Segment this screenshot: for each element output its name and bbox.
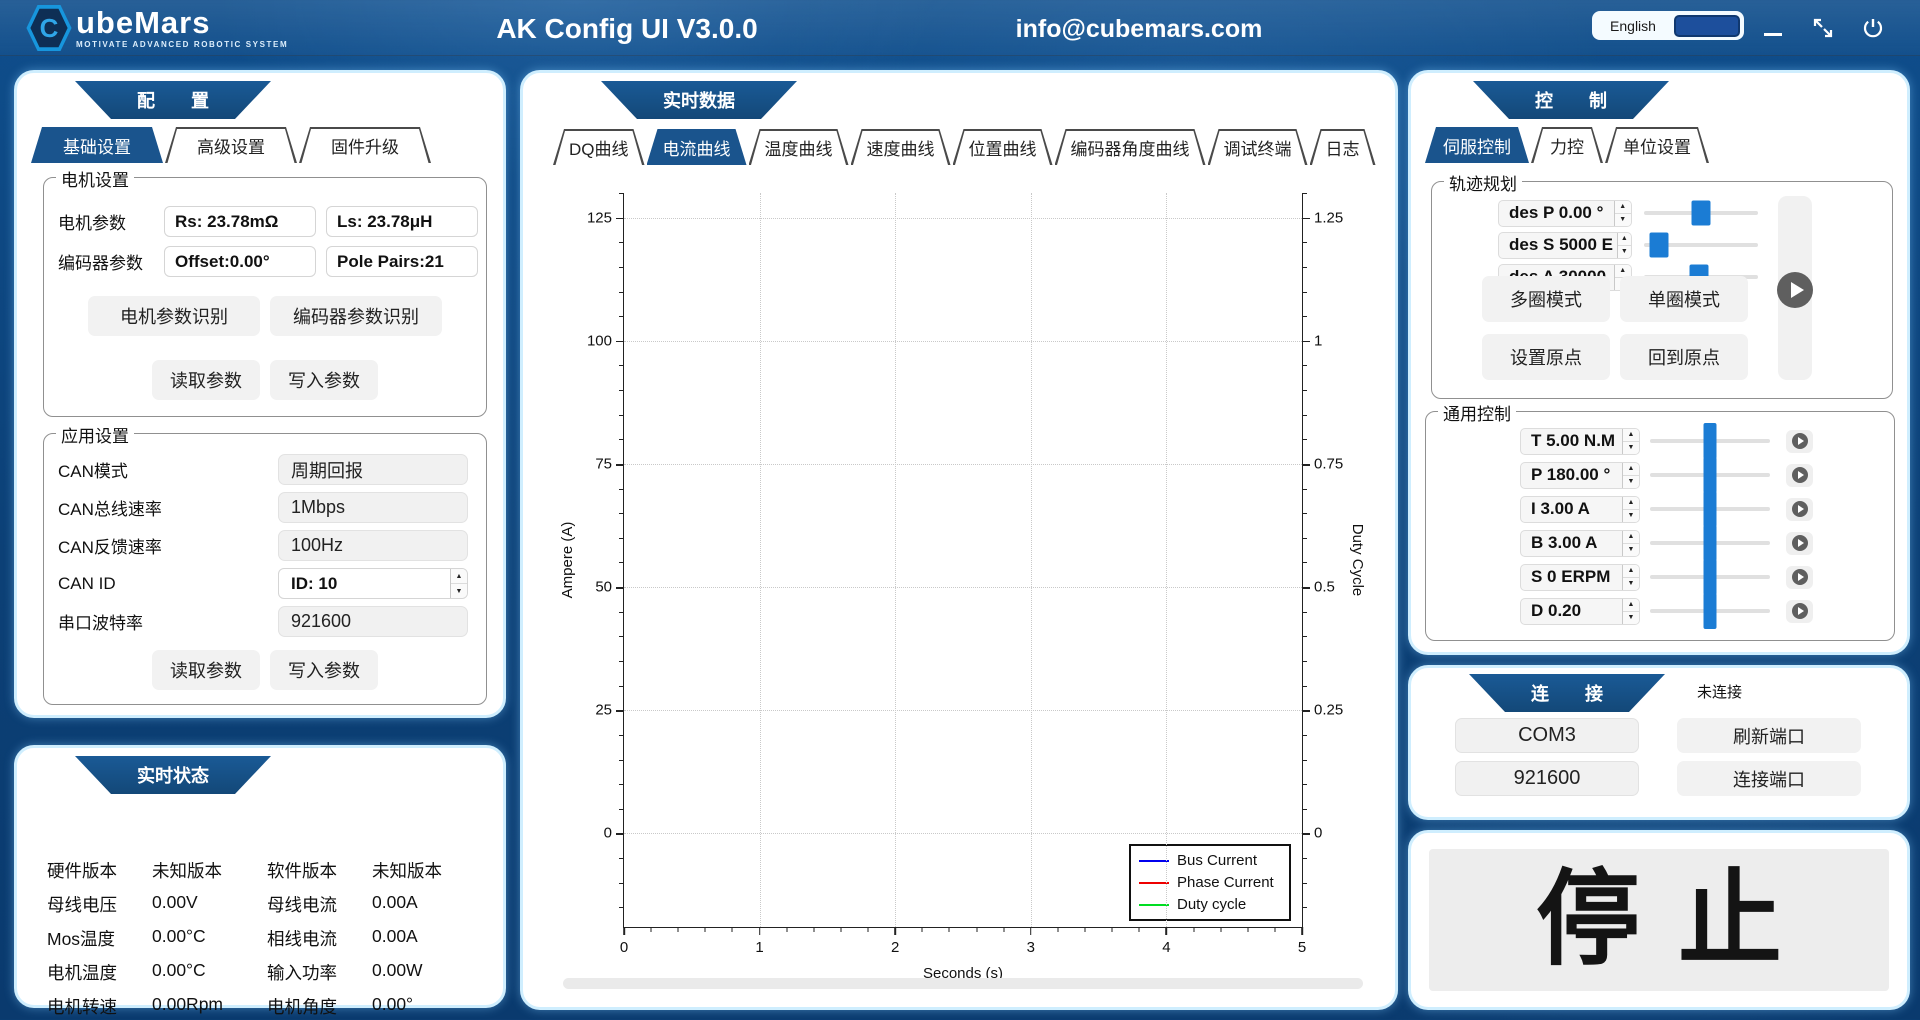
y-axis-tick-label: 0.25 xyxy=(1314,702,1343,719)
tab-label: DQ曲线 xyxy=(569,135,629,160)
tab-encoder-angle-curve[interactable]: 编码器角度曲线 xyxy=(1055,129,1206,165)
control-tabs: 伺服控制 力控 单位设置 xyxy=(1425,127,1711,163)
current-spinbox[interactable]: I 3.00 A▲▼ xyxy=(1520,496,1640,523)
status-label: 母线电流 xyxy=(267,892,364,917)
torque-run-button[interactable] xyxy=(1786,430,1813,453)
legend-label: Bus Current xyxy=(1177,852,1257,869)
can-id-label: CAN ID xyxy=(58,574,278,594)
realtime-data-panel: 实时数据 DQ曲线 电流曲线 温度曲线 速度曲线 位置曲线 编码器角度曲线 调试… xyxy=(520,70,1398,1010)
spin-down-icon[interactable]: ▼ xyxy=(1623,578,1639,590)
brake-row: B 3.00 A▲▼ xyxy=(1520,528,1870,558)
slider-thumb[interactable] xyxy=(1704,457,1717,493)
motor-identify-button[interactable]: 电机参数识别 xyxy=(88,296,260,336)
gridline-horizontal xyxy=(624,464,1302,465)
torque-row: T 5.00 N.M▲▼ xyxy=(1520,426,1870,456)
spin-up-icon[interactable]: ▲ xyxy=(1623,599,1639,612)
tab-label: 基础设置 xyxy=(63,133,131,158)
brake-value: B 3.00 A xyxy=(1521,531,1622,556)
duty-run-button[interactable] xyxy=(1786,600,1813,623)
y-axis-minor-tick xyxy=(1302,809,1307,810)
y-axis-minor-tick xyxy=(1302,316,1307,317)
spin-down-icon[interactable]: ▼ xyxy=(1623,612,1639,624)
tab-unit-settings[interactable]: 单位设置 xyxy=(1605,127,1709,163)
ls-field[interactable]: Ls: 23.78μH xyxy=(326,206,478,237)
current-slider[interactable] xyxy=(1650,494,1770,524)
baud-rate-select[interactable]: 921600 xyxy=(1455,761,1639,796)
stop-button[interactable]: 停止 xyxy=(1429,849,1889,991)
slider-thumb[interactable] xyxy=(1704,423,1717,459)
brake-spinbox[interactable]: B 3.00 A▲▼ xyxy=(1520,530,1640,557)
spin-down-icon[interactable]: ▼ xyxy=(1615,214,1631,226)
can-bus-rate-label: CAN总线速率 xyxy=(58,495,278,520)
slider-thumb[interactable] xyxy=(1691,201,1710,226)
y-axis-minor-tick xyxy=(1302,784,1307,785)
brand-name: ubeMars xyxy=(76,8,288,38)
tab-label: 电流曲线 xyxy=(663,135,731,160)
y-axis-minor-tick xyxy=(1302,365,1307,366)
language-toggle[interactable]: English xyxy=(1592,11,1744,40)
motor-settings-group: 电机设置 电机参数 Rs: 23.78mΩ Ls: 23.78μH 编码器参数 … xyxy=(43,177,487,417)
tab-label: 速度曲线 xyxy=(867,135,935,160)
play-icon xyxy=(1798,607,1804,615)
tab-label: 温度曲线 xyxy=(765,135,833,160)
single-turn-mode-button[interactable]: 单圈模式 xyxy=(1620,276,1748,322)
duty-value: D 0.20 xyxy=(1521,599,1622,624)
status-value: 0.00Rpm xyxy=(152,994,223,1019)
config-tabs: 基础设置 高级设置 固件升级 xyxy=(31,127,433,163)
status-row: 输入功率0.00W xyxy=(267,960,487,985)
y-axis-minor-tick xyxy=(1302,858,1307,859)
logo-hexagon-icon: C xyxy=(26,4,72,52)
slider-thumb[interactable] xyxy=(1704,525,1717,561)
tab-label: 单位设置 xyxy=(1623,133,1691,158)
status-grid: 硬件版本未知版本 软件版本未知版本 母线电压0.00V 母线电流0.00A Mo… xyxy=(47,858,487,1020)
y-axis-minor-tick xyxy=(1302,292,1307,293)
tab-log[interactable]: 日志 xyxy=(1310,129,1376,165)
status-label: 母线电压 xyxy=(47,892,144,917)
y-axis-minor-tick xyxy=(619,809,624,810)
des-speed-slider[interactable] xyxy=(1644,230,1758,260)
torque-spinbox[interactable]: T 5.00 N.M▲▼ xyxy=(1520,428,1640,455)
y-axis-tick-label: 0 xyxy=(1314,825,1322,842)
status-label: 输入功率 xyxy=(267,960,364,985)
des-position-value: des P 0.00 ° xyxy=(1499,201,1614,226)
x-axis-tick-label: 2 xyxy=(891,939,899,956)
torque-slider[interactable] xyxy=(1650,426,1770,456)
y-axis-minor-tick xyxy=(619,907,624,908)
x-axis-minor-tick xyxy=(1193,927,1194,932)
status-row: 母线电压0.00V xyxy=(47,892,267,917)
y-axis-tick xyxy=(616,833,624,835)
duty-slider[interactable] xyxy=(1650,596,1770,626)
spin-arrows[interactable]: ▲▼ xyxy=(1614,201,1631,226)
spin-arrows[interactable]: ▲▼ xyxy=(1617,233,1631,258)
tab-force-control[interactable]: 力控 xyxy=(1531,127,1603,163)
y-axis-tick-label: 1 xyxy=(1314,332,1322,349)
y-axis-tick-label: 0.75 xyxy=(1314,455,1343,472)
connect-port-button[interactable]: 连接端口 xyxy=(1677,761,1861,796)
write-params-button[interactable]: 写入参数 xyxy=(270,360,378,400)
spin-arrows[interactable]: ▲▼ xyxy=(1622,599,1639,624)
y-axis-tick xyxy=(616,464,624,466)
y-axis-minor-tick xyxy=(619,562,624,563)
duty-row: D 0.20▲▼ xyxy=(1520,596,1870,626)
read-params-button[interactable]: 读取参数 xyxy=(152,360,260,400)
slider-thumb[interactable] xyxy=(1704,491,1717,527)
spin-arrows[interactable]: ▲▼ xyxy=(1622,429,1639,454)
y-axis-minor-tick xyxy=(619,267,624,268)
y-axis-tick xyxy=(616,710,624,712)
spin-down-icon[interactable]: ▼ xyxy=(1623,442,1639,454)
trajectory-group: 轨迹规划 des P 0.00 ° ▲▼ des S 5000 E ▲▼ xyxy=(1431,181,1893,399)
x-axis-minor-tick xyxy=(1085,927,1086,932)
status-row: 电机温度0.00°C xyxy=(47,960,267,985)
tab-position-curve[interactable]: 位置曲线 xyxy=(953,129,1053,165)
trajectory-play-button[interactable] xyxy=(1777,272,1813,308)
legend-entry: Duty cycle xyxy=(1139,896,1281,913)
x-axis-minor-tick xyxy=(705,927,706,932)
y-axis-minor-tick xyxy=(1302,513,1307,514)
motor-settings-title: 电机设置 xyxy=(56,166,134,191)
y-axis-minor-tick xyxy=(1302,907,1307,908)
y-axis-minor-tick xyxy=(619,760,624,761)
y-axis-minor-tick xyxy=(619,661,624,662)
y-axis-minor-tick xyxy=(1302,883,1307,884)
config-banner: 配 置 xyxy=(75,81,271,119)
y-axis-tick-label: 100 xyxy=(562,332,612,349)
multi-turn-mode-button[interactable]: 多圈模式 xyxy=(1482,276,1610,322)
tab-advanced-settings[interactable]: 高级设置 xyxy=(165,127,297,163)
y-axis-tick-label: 75 xyxy=(562,455,612,472)
connection-panel: 连 接 未连接 COM3 921600 刷新端口 连接端口 xyxy=(1408,665,1910,820)
position-row: P 180.00 °▲▼ xyxy=(1520,460,1870,490)
brake-slider[interactable] xyxy=(1650,528,1770,558)
spin-arrows[interactable]: ▲▼ xyxy=(1622,463,1639,488)
tab-firmware-upgrade[interactable]: 固件升级 xyxy=(299,127,431,163)
tab-debug-terminal[interactable]: 调试终端 xyxy=(1208,129,1308,165)
pole-pairs-field[interactable]: Pole Pairs:21 xyxy=(326,246,478,277)
legend-label: Phase Current xyxy=(1177,874,1274,891)
gridline-horizontal xyxy=(624,710,1302,711)
des-speed-row: des S 5000 E ▲▼ xyxy=(1498,230,1758,260)
plot-area: Ampere (A) Duty Cycle Seconds (s) Bus Cu… xyxy=(623,193,1303,928)
language-toggle-label: English xyxy=(1592,18,1674,34)
play-icon xyxy=(1798,505,1804,513)
status-value: 0.00°C xyxy=(152,960,206,985)
y-axis-minor-tick xyxy=(619,784,624,785)
com-port-select[interactable]: COM3 xyxy=(1455,718,1639,753)
current-row: I 3.00 A▲▼ xyxy=(1520,494,1870,524)
spin-up-icon[interactable]: ▲ xyxy=(1623,497,1639,510)
can-id-spin-arrows[interactable]: ▲ ▼ xyxy=(450,569,467,598)
x-axis-tick xyxy=(1301,927,1303,935)
x-axis-minor-tick xyxy=(922,927,923,932)
x-axis-tick-label: 4 xyxy=(1162,939,1170,956)
status-row: 电机角度0.00° xyxy=(267,994,487,1019)
x-axis-tick-label: 1 xyxy=(755,939,763,956)
speed-spinbox[interactable]: S 0 ERPM▲▼ xyxy=(1520,564,1640,591)
x-axis-minor-tick xyxy=(786,927,787,932)
status-value: 0.00A xyxy=(372,926,418,951)
brake-run-button[interactable] xyxy=(1786,532,1813,555)
y-axis-minor-tick xyxy=(1302,735,1307,736)
spin-down-icon[interactable]: ▼ xyxy=(451,584,467,598)
realtime-data-banner: 实时数据 xyxy=(601,81,797,119)
x-axis-tick xyxy=(759,927,761,935)
status-value: 0.00V xyxy=(152,892,198,917)
x-axis-minor-tick xyxy=(651,927,652,932)
tab-speed-curve[interactable]: 速度曲线 xyxy=(851,129,951,165)
chart-scrollbar[interactable] xyxy=(563,978,1363,989)
x-axis-minor-tick xyxy=(976,927,977,932)
status-value: 0.00W xyxy=(372,960,423,985)
set-origin-button[interactable]: 设置原点 xyxy=(1482,334,1610,380)
duty-spinbox[interactable]: D 0.20▲▼ xyxy=(1520,598,1640,625)
spin-down-icon[interactable]: ▼ xyxy=(1623,510,1639,522)
x-axis-minor-tick xyxy=(1003,927,1004,932)
y-axis-tick xyxy=(616,218,624,220)
title-bar: C ubeMars MOTIVATE ADVANCED ROBOTIC SYST… xyxy=(0,0,1920,56)
slider-thumb[interactable] xyxy=(1704,559,1717,595)
minimize-button[interactable] xyxy=(1758,14,1788,42)
status-value: 0.00°C xyxy=(152,926,206,951)
gridline-vertical xyxy=(1166,193,1167,927)
spin-up-icon[interactable]: ▲ xyxy=(1615,201,1631,214)
status-value: 0.00° xyxy=(372,994,413,1019)
tab-servo-control[interactable]: 伺服控制 xyxy=(1425,127,1529,163)
logo-letter: C xyxy=(30,8,68,48)
brand-text: ubeMars MOTIVATE ADVANCED ROBOTIC SYSTEM xyxy=(76,8,288,49)
tab-label: 固件升级 xyxy=(331,133,399,158)
play-icon xyxy=(1798,471,1804,479)
write-params-button[interactable]: 写入参数 xyxy=(270,650,378,690)
position-slider[interactable] xyxy=(1650,460,1770,490)
stop-button-label: 停止 xyxy=(1498,868,1820,972)
play-icon xyxy=(1798,437,1804,445)
status-label: 软件版本 xyxy=(267,858,364,883)
x-axis-tick-label: 0 xyxy=(620,939,628,956)
offset-field[interactable]: Offset:0.00° xyxy=(164,246,316,277)
control-banner: 控 制 xyxy=(1473,81,1669,119)
speed-run-button[interactable] xyxy=(1786,566,1813,589)
y-axis-minor-tick xyxy=(1302,489,1307,490)
y-axis-minor-tick xyxy=(619,686,624,687)
power-icon xyxy=(1861,16,1885,40)
tab-label: 伺服控制 xyxy=(1443,133,1511,158)
can-bus-rate-field[interactable]: 1Mbps xyxy=(278,492,468,523)
x-axis-minor-tick xyxy=(1112,927,1113,932)
status-value: 0.00A xyxy=(372,892,418,917)
gridline-horizontal xyxy=(624,341,1302,342)
can-feedback-rate-label: CAN反馈速率 xyxy=(58,533,278,558)
y-axis-tick xyxy=(1302,710,1310,712)
tab-label: 调试终端 xyxy=(1224,135,1292,160)
position-run-button[interactable] xyxy=(1786,464,1813,487)
spin-up-icon[interactable]: ▲ xyxy=(1623,565,1639,578)
y-axis-minor-tick xyxy=(1302,193,1307,194)
can-id-spinbox[interactable]: ID: 10 ▲ ▼ xyxy=(278,568,468,599)
minimize-icon xyxy=(1764,33,1782,36)
y-axis-minor-tick xyxy=(1302,390,1307,391)
x-axis-minor-tick xyxy=(1057,927,1058,932)
tab-basic-settings[interactable]: 基础设置 xyxy=(31,127,163,163)
status-label: 相线电流 xyxy=(267,926,364,951)
refresh-port-button[interactable]: 刷新端口 xyxy=(1677,718,1861,753)
read-params-button[interactable]: 读取参数 xyxy=(152,650,260,690)
gridline-vertical xyxy=(1031,193,1032,927)
legend-entry: Phase Current xyxy=(1139,874,1281,891)
spin-down-icon[interactable]: ▼ xyxy=(1618,246,1631,258)
chart-legend: Bus Current Phase Current Duty cycle xyxy=(1129,844,1291,921)
status-label: 电机温度 xyxy=(47,960,144,985)
y-axis-minor-tick xyxy=(1302,636,1307,637)
x-axis-tick-label: 5 xyxy=(1298,939,1306,956)
can-feedback-rate-field[interactable]: 100Hz xyxy=(278,530,468,561)
status-row: Mos温度0.00°C xyxy=(47,926,267,951)
serial-baud-label: 串口波特率 xyxy=(58,609,278,634)
y-axis-minor-tick xyxy=(619,415,624,416)
brand-tagline: MOTIVATE ADVANCED ROBOTIC SYSTEM xyxy=(76,40,288,49)
y-axis-minor-tick xyxy=(1302,415,1307,416)
spin-arrows[interactable]: ▲▼ xyxy=(1622,531,1639,556)
control-panel: 控 制 伺服控制 力控 单位设置 轨迹规划 des P 0.00 ° ▲▼ de… xyxy=(1408,70,1910,655)
status-value: 未知版本 xyxy=(152,858,222,883)
x-axis-minor-tick xyxy=(1247,927,1248,932)
slider-thumb[interactable] xyxy=(1649,233,1668,258)
x-axis-tick xyxy=(1166,927,1168,935)
status-value: 未知版本 xyxy=(372,858,442,883)
language-toggle-knob[interactable] xyxy=(1674,15,1740,37)
serial-baud-field[interactable]: 921600 xyxy=(278,606,468,637)
encoder-param-label: 编码器参数 xyxy=(58,249,154,274)
gridline-horizontal xyxy=(624,218,1302,219)
cubemars-logo: C ubeMars MOTIVATE ADVANCED ROBOTIC SYST… xyxy=(26,4,288,52)
y-axis-minor-tick xyxy=(1302,760,1307,761)
spin-down-icon[interactable]: ▼ xyxy=(1623,544,1639,556)
slider-thumb[interactable] xyxy=(1704,593,1717,629)
des-position-spinbox[interactable]: des P 0.00 ° ▲▼ xyxy=(1498,200,1632,227)
y-axis-minor-tick xyxy=(1302,439,1307,440)
x-axis-minor-tick xyxy=(678,927,679,932)
x-axis-tick xyxy=(894,927,896,935)
legend-line-duty-cycle xyxy=(1139,904,1169,906)
y-axis-minor-tick xyxy=(619,390,624,391)
x-axis-minor-tick xyxy=(1274,927,1275,932)
position-spinbox[interactable]: P 180.00 °▲▼ xyxy=(1520,462,1640,489)
x-axis-minor-tick xyxy=(840,927,841,932)
back-to-origin-button[interactable]: 回到原点 xyxy=(1620,334,1748,380)
motor-param-label: 电机参数 xyxy=(58,209,154,234)
y-axis-minor-tick xyxy=(1302,661,1307,662)
app-settings-group: 应用设置 CAN模式 周期回报 CAN总线速率 1Mbps CAN反馈速率 10… xyxy=(43,433,487,705)
y-axis-tick xyxy=(1302,833,1310,835)
gridline-vertical xyxy=(760,193,761,927)
spin-up-icon[interactable]: ▲ xyxy=(451,569,467,584)
spin-arrows[interactable]: ▲▼ xyxy=(1622,565,1639,590)
y-axis-minor-tick xyxy=(619,513,624,514)
des-position-row: des P 0.00 ° ▲▼ xyxy=(1498,198,1758,228)
tab-label: 力控 xyxy=(1550,133,1584,158)
general-control-title: 通用控制 xyxy=(1438,400,1516,425)
y-axis-minor-tick xyxy=(1302,612,1307,613)
tab-dq-curve[interactable]: DQ曲线 xyxy=(553,129,645,165)
legend-label: Duty cycle xyxy=(1177,896,1246,913)
des-position-slider[interactable] xyxy=(1644,198,1758,228)
stop-panel: 停止 xyxy=(1408,830,1910,1010)
status-row: 母线电流0.00A xyxy=(267,892,487,917)
x-axis-minor-tick xyxy=(1139,927,1140,932)
y-axis-tick xyxy=(1302,464,1310,466)
tab-temperature-curve[interactable]: 温度曲线 xyxy=(749,129,849,165)
y-axis-minor-tick xyxy=(619,538,624,539)
spin-up-icon[interactable]: ▲ xyxy=(1618,233,1631,246)
y-axis-minor-tick xyxy=(619,858,624,859)
contact-email: info@cubemars.com xyxy=(1016,15,1263,44)
tab-current-curve[interactable]: 电流曲线 xyxy=(647,129,747,165)
status-label: 电机转速 xyxy=(47,994,144,1019)
y-axis-minor-tick xyxy=(619,292,624,293)
tab-label: 日志 xyxy=(1326,135,1360,160)
status-banner: 实时状态 xyxy=(75,756,271,794)
y-axis-minor-tick xyxy=(619,883,624,884)
y-axis-minor-tick xyxy=(619,316,624,317)
speed-value: S 0 ERPM xyxy=(1521,565,1622,590)
x-axis-minor-tick xyxy=(732,927,733,932)
gridline-horizontal xyxy=(624,587,1302,588)
y-axis-minor-tick xyxy=(1302,562,1307,563)
des-speed-value: des S 5000 E xyxy=(1499,233,1617,258)
maximize-button[interactable] xyxy=(1808,14,1838,42)
y-axis-minor-tick xyxy=(619,193,624,194)
spin-up-icon[interactable]: ▲ xyxy=(1623,531,1639,544)
status-row: 电机转速0.00Rpm xyxy=(47,994,267,1019)
des-speed-spinbox[interactable]: des S 5000 E ▲▼ xyxy=(1498,232,1632,259)
x-axis-minor-tick xyxy=(868,927,869,932)
curve-tabs: DQ曲线 电流曲线 温度曲线 速度曲线 位置曲线 编码器角度曲线 调试终端 日志 xyxy=(553,129,1378,165)
y-axis-title-right: Duty Cycle xyxy=(1349,524,1366,597)
y-axis-tick xyxy=(1302,341,1310,343)
y-axis-minor-tick xyxy=(619,489,624,490)
spin-arrows[interactable]: ▲▼ xyxy=(1622,497,1639,522)
rs-field[interactable]: Rs: 23.78mΩ xyxy=(164,206,316,237)
speed-row: S 0 ERPM▲▼ xyxy=(1520,562,1870,592)
y-axis-tick-label: 50 xyxy=(562,579,612,596)
current-run-button[interactable] xyxy=(1786,498,1813,521)
status-row: 硬件版本未知版本 xyxy=(47,858,267,883)
encoder-identify-button[interactable]: 编码器参数识别 xyxy=(270,296,442,336)
y-axis-minor-tick xyxy=(619,636,624,637)
can-mode-label: CAN模式 xyxy=(58,457,278,482)
can-mode-field[interactable]: 周期回报 xyxy=(278,454,468,485)
trajectory-title: 轨迹规划 xyxy=(1444,170,1522,195)
connection-status: 未连接 xyxy=(1697,681,1742,702)
legend-entry: Bus Current xyxy=(1139,852,1281,869)
speed-slider[interactable] xyxy=(1650,562,1770,592)
y-axis-minor-tick xyxy=(619,242,624,243)
play-icon xyxy=(1798,573,1804,581)
play-icon xyxy=(1798,539,1804,547)
x-axis-tick-label: 3 xyxy=(1027,939,1035,956)
y-axis-tick xyxy=(1302,218,1310,220)
power-button[interactable] xyxy=(1858,14,1888,42)
spin-up-icon[interactable]: ▲ xyxy=(1623,463,1639,476)
gridline-horizontal xyxy=(624,833,1302,834)
y-axis-minor-tick xyxy=(619,735,624,736)
spin-up-icon[interactable]: ▲ xyxy=(1623,429,1639,442)
y-axis-tick xyxy=(1302,587,1310,589)
spin-down-icon[interactable]: ▼ xyxy=(1623,476,1639,488)
y-axis-tick-label: 0.5 xyxy=(1314,579,1335,596)
